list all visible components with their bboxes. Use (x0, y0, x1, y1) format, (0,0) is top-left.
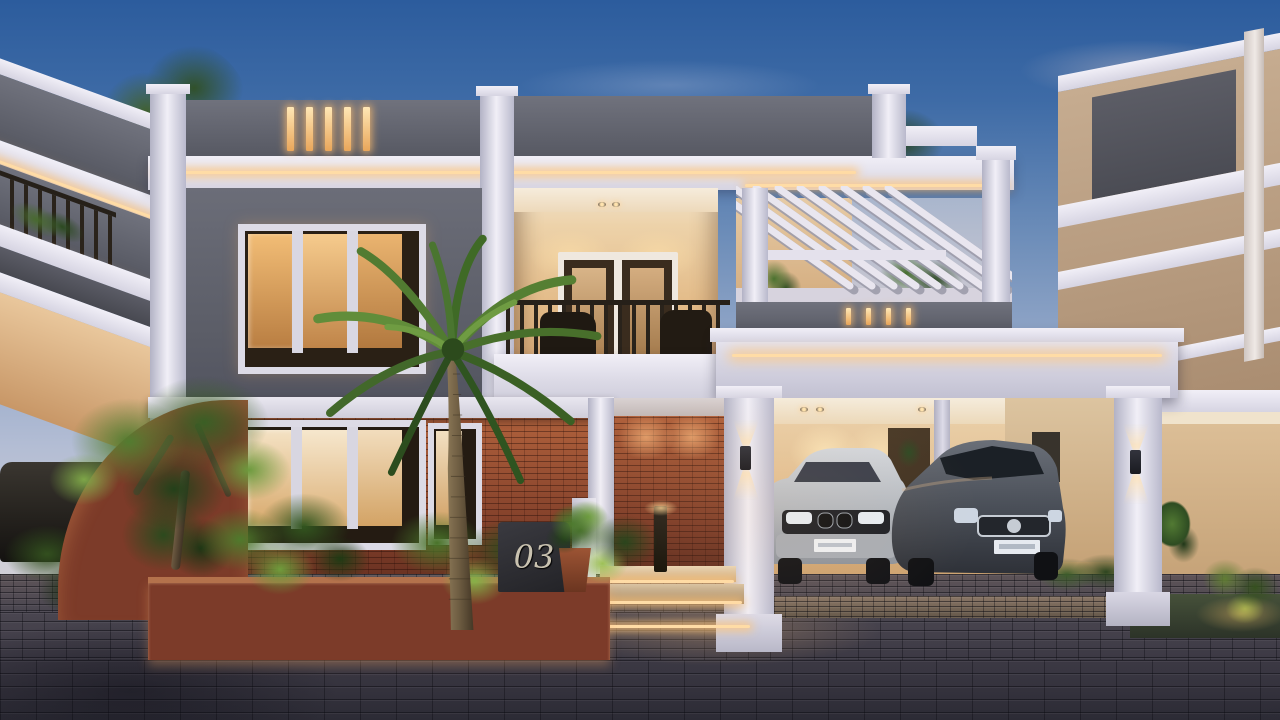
corner-plants (1190, 540, 1280, 626)
parapet-light-slot (363, 107, 370, 151)
step-led (586, 625, 750, 628)
right-porch-cornice (1160, 412, 1280, 424)
balcony-downlight-icon (612, 202, 620, 207)
terrace-slot-light (846, 308, 851, 325)
carport-downlight-icon (918, 407, 926, 412)
terrace-slot-light (866, 308, 871, 325)
parapet-right-cap (905, 126, 977, 146)
driveway-near (0, 660, 1280, 720)
carport-downlight-icon (816, 407, 824, 412)
carport-downlight-icon (800, 407, 808, 412)
pilaster-cap (868, 84, 910, 94)
column-sconce-icon (1130, 450, 1141, 474)
parapet-center (514, 96, 872, 156)
column-cap (1106, 386, 1170, 398)
parapet-light-slot (325, 107, 332, 151)
entrance-soffit (600, 398, 732, 416)
fascia-cornice (710, 328, 1184, 342)
column-sconce-icon (740, 446, 751, 470)
parapet-light-slot (344, 107, 351, 151)
parapet-left (186, 100, 482, 156)
parapet-light-slot (287, 107, 294, 151)
terrace-slot-light (886, 308, 891, 325)
balcony-chair (660, 310, 712, 358)
right-porch-railing (1160, 390, 1280, 412)
garden-tree-crown (24, 356, 324, 546)
dark-grey-sedan (892, 440, 1066, 586)
window-pane (248, 234, 292, 348)
pilaster (872, 88, 906, 158)
palm-tree (300, 200, 610, 630)
pilaster-cap (146, 84, 190, 94)
parapet-light-slot (306, 107, 313, 151)
terrace-slot-light (906, 308, 911, 325)
silver-sedan (760, 448, 909, 584)
right-pilaster (1244, 28, 1264, 362)
carport-column (1114, 392, 1162, 618)
column-cap (716, 386, 782, 398)
villa-dusk-render: 03 (0, 0, 1280, 720)
pilaster (150, 88, 186, 400)
column-base (1106, 592, 1170, 626)
pergola-post-cap (976, 146, 1016, 160)
step-led (594, 601, 742, 604)
pilaster-cap (476, 86, 518, 96)
carport-floor (774, 596, 1120, 618)
carport-cars (742, 420, 1078, 616)
